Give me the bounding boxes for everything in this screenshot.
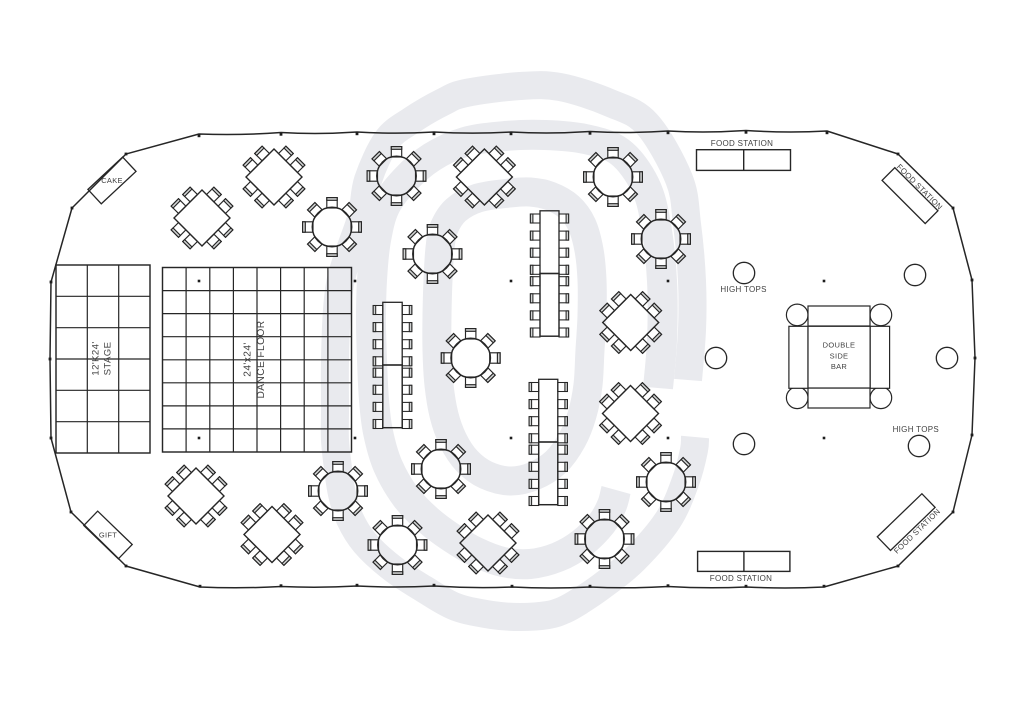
svg-text:SIDE: SIDE <box>830 352 849 361</box>
svg-text:DOUBLE: DOUBLE <box>823 341 856 350</box>
svg-text:FOOD STATION: FOOD STATION <box>710 574 772 583</box>
svg-text:24'x24': 24'x24' <box>243 342 254 376</box>
svg-text:HIGH TOPS: HIGH TOPS <box>720 285 766 294</box>
svg-text:GIFT: GIFT <box>99 531 117 540</box>
svg-text:BAR: BAR <box>831 362 848 371</box>
svg-text:HIGH TOPS: HIGH TOPS <box>893 425 939 434</box>
svg-text:12'K24': 12'K24' <box>91 341 102 375</box>
svg-text:STAGE: STAGE <box>103 342 114 376</box>
svg-text:FOOD STATION: FOOD STATION <box>711 139 773 148</box>
svg-text:CAKE: CAKE <box>101 176 123 185</box>
svg-text:DANCE FLOOR: DANCE FLOOR <box>256 321 267 399</box>
